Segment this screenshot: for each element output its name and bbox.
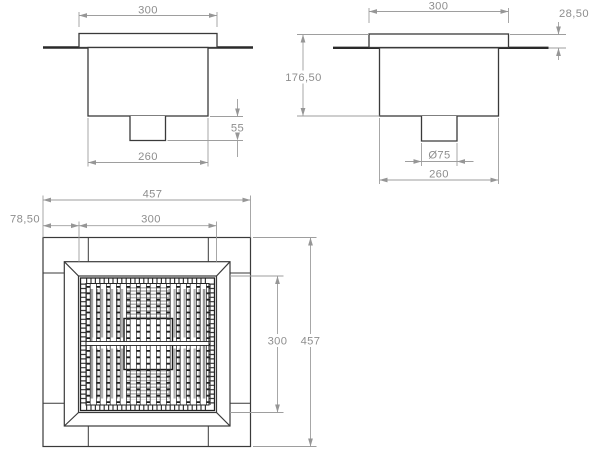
- front-outlet-pipe: [130, 116, 166, 141]
- dim-label-side-pipe-diameter: Ø75: [428, 150, 450, 162]
- side-body: [380, 48, 499, 116]
- arrowhead: [491, 178, 499, 183]
- front-body: [88, 48, 208, 117]
- arrowhead: [308, 238, 313, 246]
- arrowhead: [209, 223, 217, 228]
- dim-label-plan-outer-width: 457: [143, 189, 163, 201]
- plan-grate: [81, 278, 215, 411]
- arrowhead: [43, 198, 51, 203]
- plan-view: 457 78,50 300 300 457: [10, 189, 323, 447]
- arrowhead: [414, 159, 422, 164]
- dim-label-side-body-width: 260: [429, 169, 449, 181]
- arrowhead: [200, 160, 208, 165]
- arrowhead: [43, 223, 51, 228]
- arrowhead: [380, 178, 388, 183]
- grate-middle-rail: [86, 342, 209, 346]
- front-view: 300 55 260: [43, 5, 253, 167]
- arrowhead: [301, 108, 306, 116]
- dim-label-plan-opening-height: 300: [268, 336, 288, 348]
- arrowhead: [88, 160, 96, 165]
- arrowhead: [235, 109, 240, 117]
- arrowhead: [243, 198, 251, 203]
- arrowhead: [79, 223, 87, 228]
- dim-label-side-top-width: 300: [429, 1, 449, 13]
- arrowhead: [308, 439, 313, 447]
- dim-label-side-rim-height: 28,50: [559, 8, 589, 20]
- arrowhead: [556, 27, 561, 35]
- dim-label-plan-opening-width: 300: [141, 214, 161, 226]
- arrowhead: [275, 276, 280, 284]
- dim-label-plan-outer-height: 457: [301, 336, 321, 348]
- side-outlet-pipe: [422, 116, 458, 141]
- side-top-cap: [369, 34, 509, 48]
- dim-label-front-outlet-depth: 55: [231, 123, 244, 135]
- technical-drawing: 300 55 260: [0, 0, 600, 450]
- side-view: 300 28,50 176,50 Ø75: [285, 1, 589, 185]
- arrowhead: [79, 13, 87, 18]
- drawing-canvas: 300 55 260: [0, 0, 600, 450]
- dim-label-front-top-width: 300: [138, 5, 158, 17]
- dim-label-side-overall-height: 176,50: [285, 72, 322, 84]
- arrowhead: [457, 159, 465, 164]
- arrowhead: [275, 405, 280, 413]
- arrowhead: [501, 9, 509, 14]
- front-top-cap: [79, 34, 217, 48]
- arrowhead: [556, 48, 561, 56]
- arrowhead: [369, 9, 377, 14]
- arrowhead: [301, 35, 306, 43]
- dim-label-plan-edge-offset: 78,50: [10, 214, 40, 226]
- dim-label-front-body-width: 260: [138, 151, 158, 163]
- arrowhead: [71, 223, 79, 228]
- arrowhead: [209, 13, 217, 18]
